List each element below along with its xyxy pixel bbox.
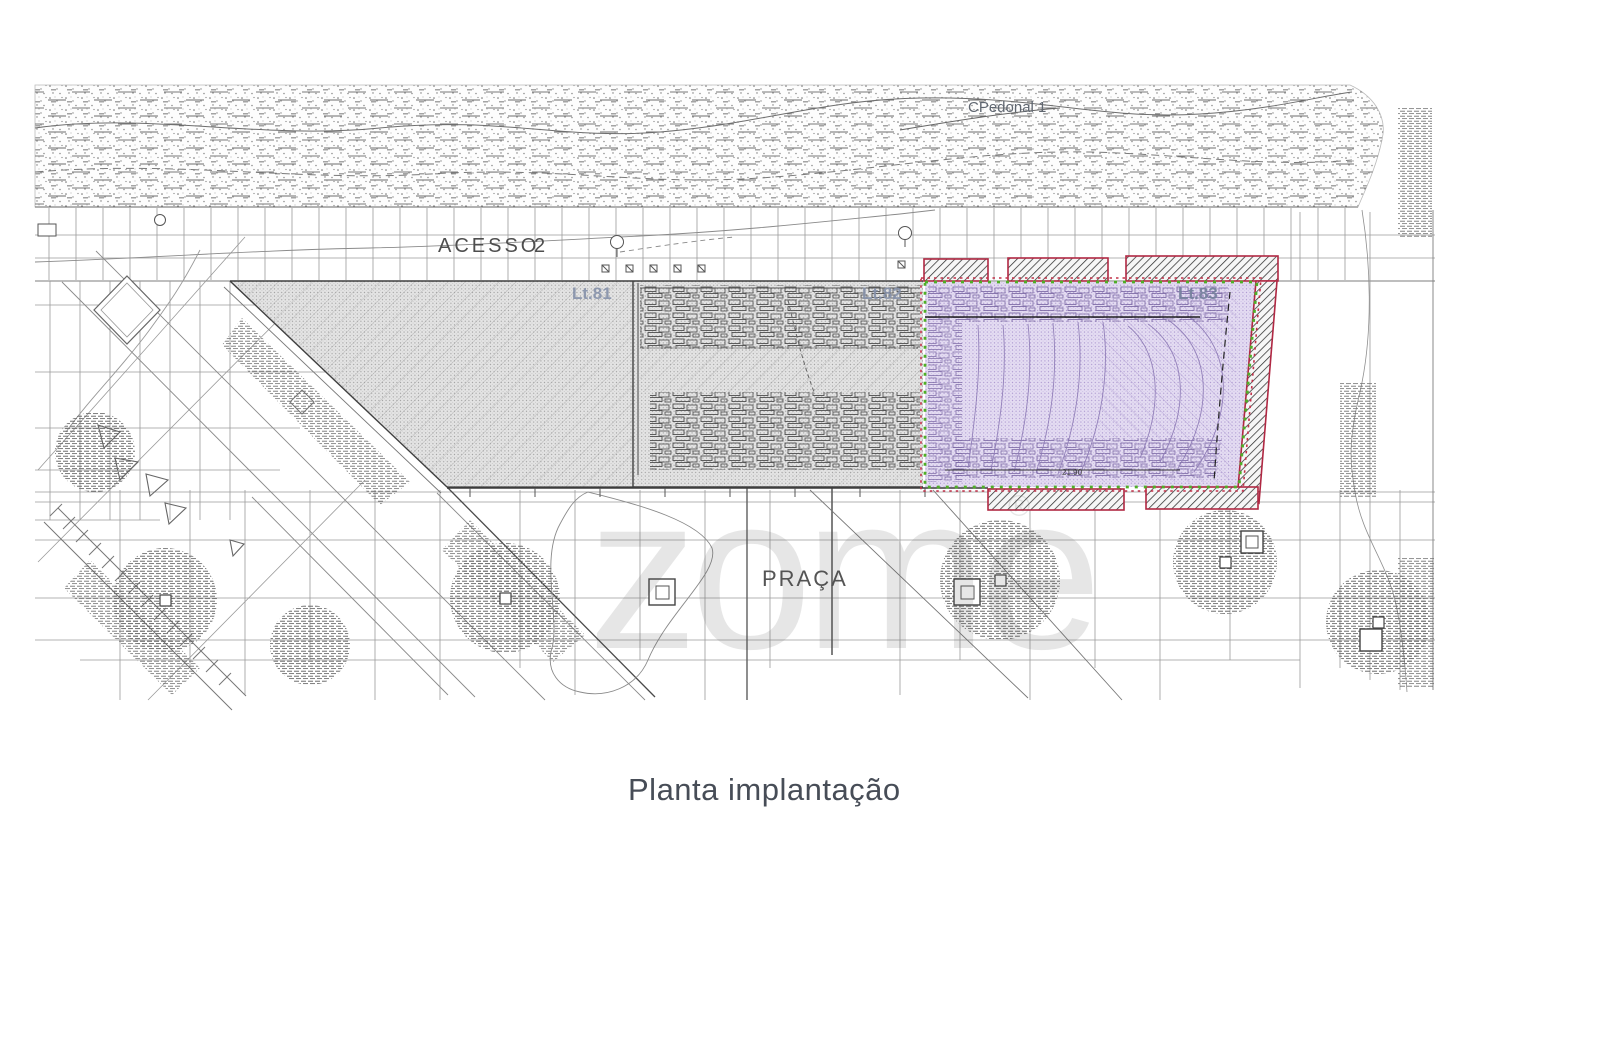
watermark-text: zome xyxy=(588,449,1094,695)
pedestrian-path-label: CPedonal 1 xyxy=(968,99,1046,116)
access-road-label: ACESSO xyxy=(438,235,539,257)
embankment-band xyxy=(35,85,1383,207)
access-road-number: 2 xyxy=(534,235,545,257)
site-plan-drawing: CPedonal 1 ACESSO 2 Lt.81 Lt.82 Lt.83 PR… xyxy=(0,0,1600,1062)
lot-82-label: Lt.82 xyxy=(862,284,902,303)
lot-81-label: Lt.81 xyxy=(572,284,612,303)
watermark: zome ® xyxy=(588,449,1094,695)
lot-83-label: Lt.83 xyxy=(1178,284,1218,303)
watermark-registered-symbol: ® xyxy=(1008,490,1030,523)
drawing-caption: Planta implantação xyxy=(628,772,901,808)
site-plan-page: CPedonal 1 ACESSO 2 Lt.81 Lt.82 Lt.83 PR… xyxy=(0,0,1600,1062)
survey-symbols xyxy=(155,215,966,273)
